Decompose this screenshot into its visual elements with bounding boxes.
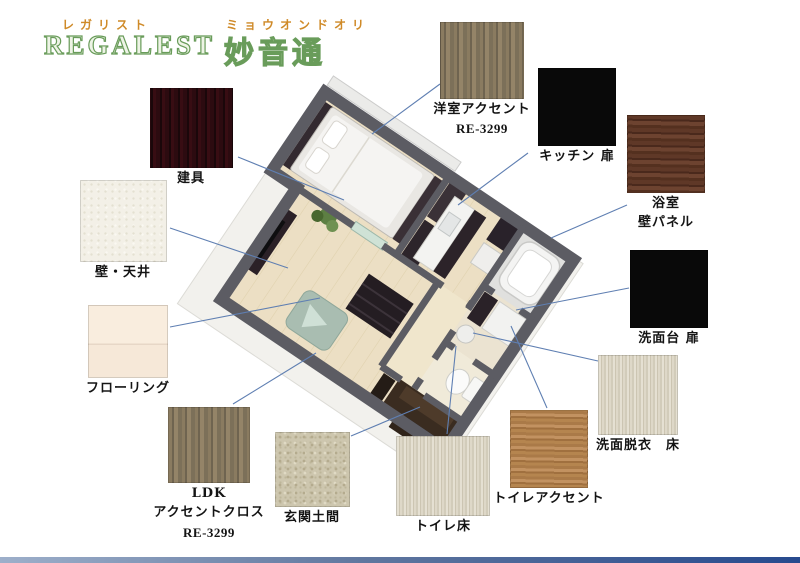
ldk-accent-label: LDK [192,486,227,502]
swatch-bathroom-panel: 浴室 壁パネル [600,115,732,232]
toilet-floor-chip [396,436,490,516]
wall-ceiling-label: 壁・天井 [95,265,151,281]
swatch-genkan-floor: 玄関土間 [256,432,368,526]
genkan-floor-label: 玄関土間 [284,510,340,526]
brand-logo-text: REGALEST [44,30,215,60]
wall-ceiling-chip [80,180,167,262]
swatch-ldk-accent: LDK アクセントクロス RE-3299 [149,407,269,541]
flooring-label: フローリング [86,381,170,397]
flooring-chip [88,305,168,378]
swatch-toilet-accent: トイレアクセント [489,410,609,507]
ldk-accent-label2: アクセントクロス [153,505,264,521]
ldk-accent-chip [168,407,250,483]
tategu-chip [150,88,233,168]
swatch-toilet-floor: トイレ床 [387,436,499,535]
property-name: 妙音通 [224,28,326,72]
toilet-floor-label: トイレ床 [415,519,471,535]
swatch-tategu: 建具 [135,88,247,187]
ldk-accent-code: RE-3299 [183,525,235,541]
vanity-door-chip [630,250,708,328]
genkan-floor-chip [275,432,350,507]
vanity-door-label: 洗面台 扉 [638,331,700,347]
bathroom-panel-label2: 壁パネル [638,215,694,231]
toilet-accent-chip [510,410,588,488]
bathroom-panel-label: 浴室 [652,196,680,212]
swatch-wall-ceiling: 壁・天井 [67,180,179,281]
swatch-flooring: フローリング [72,305,184,397]
tategu-label: 建具 [177,171,205,187]
bathroom-panel-chip [627,115,705,193]
yoshitsu-accent-code: RE-3299 [456,121,508,137]
property-name-text: 妙音通 [224,36,326,71]
toilet-accent-label: トイレアクセント [493,491,604,507]
footer-gradient-bar [0,557,800,563]
washroom-floor-chip [598,355,678,435]
swatch-vanity-door: 洗面台 扉 [603,250,735,347]
brand-logo: REGALEST [44,30,215,61]
